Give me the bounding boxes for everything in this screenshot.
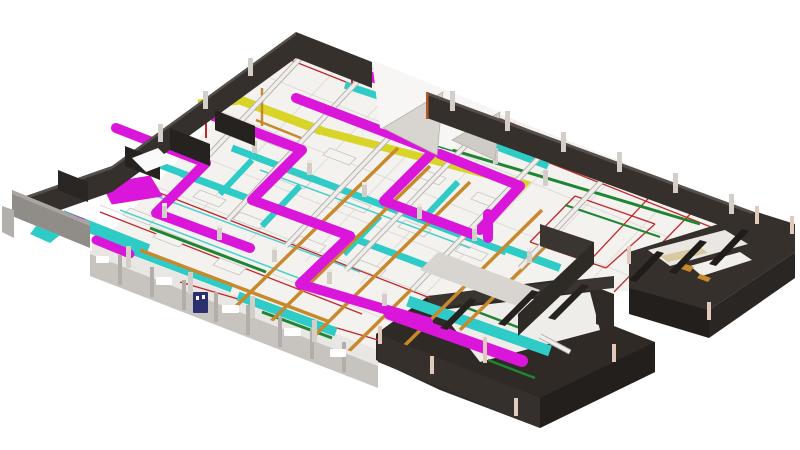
entry-door — [193, 292, 208, 313]
bim-3d-model — [0, 0, 800, 450]
bim-viewport — [0, 0, 800, 450]
